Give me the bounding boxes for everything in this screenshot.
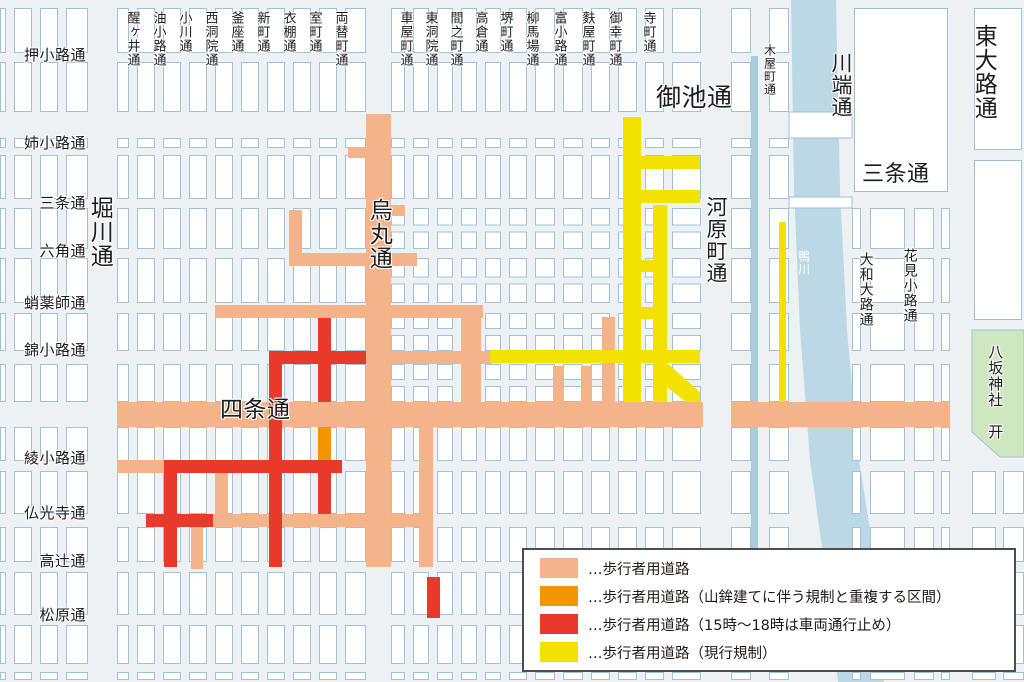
legend-item: …歩行者用道路（山鉾建てに伴う規制と重複する区間）: [540, 584, 1014, 608]
street-label-horizontal: 高辻通: [2, 553, 86, 570]
street-label-vertical: 間之町通: [447, 11, 462, 67]
legend-swatch-current: [540, 642, 578, 662]
street-label-horizontal: 仏光寺通: [2, 505, 86, 522]
street-label-horizontal: 錦小路通: [2, 342, 86, 359]
legend-item-label: …歩行者用道路: [588, 558, 690, 579]
legend-item: …歩行者用道路（現行規制）: [540, 640, 1014, 664]
kyoto-pedestrian-road-map: 醒ヶ井通油小路通小川通西洞院通釜座通新町通衣棚通室町通両替町通車屋町通東洞院通間…: [0, 0, 1024, 682]
street-label-vertical: 衣棚通: [280, 11, 295, 53]
street-label-horizontal: 松原通: [2, 607, 86, 624]
legend-item-label: …歩行者用道路（山鉾建てに伴う規制と重複する区間）: [588, 586, 951, 607]
street-label-vertical: 醒ヶ井通: [124, 11, 139, 67]
legend-item: …歩行者用道路（15時〜18時は車両通行止め）: [540, 612, 1014, 636]
street-label-horizontal: 蛸薬師通: [2, 295, 86, 312]
street-label-vertical: 東洞院通: [422, 11, 437, 67]
street-label-major: 河原町通: [704, 196, 728, 284]
street-label-vertical: 両替町通: [332, 11, 347, 67]
street-label-vertical: 車屋町通: [397, 11, 412, 67]
street-label-vertical: 新町通: [254, 11, 269, 53]
legend-swatch-pedestrian: [540, 558, 578, 578]
street-label-horizontal: 六角通: [2, 243, 86, 260]
roads-overlap-yamahoko: [318, 427, 331, 462]
street-label-major: 鴨川: [796, 250, 809, 276]
street-label-major: 三条通: [862, 163, 930, 188]
street-label-vertical: 釜座通: [228, 11, 243, 53]
legend: …歩行者用道路 …歩行者用道路（山鉾建てに伴う規制と重複する区間） …歩行者用道…: [522, 548, 1016, 672]
street-label-vertical: 寺町通: [640, 11, 655, 53]
street-label-major: 烏丸通: [365, 198, 391, 270]
street-label-vertical: 高倉通: [472, 11, 487, 53]
street-label-vertical: 油小路通: [150, 11, 165, 67]
street-label-vertical: 堺町通: [497, 11, 512, 53]
street-label-vertical: 柳馬場通: [523, 11, 538, 67]
street-label-major: 四条通: [220, 398, 291, 424]
street-label-major: 川端通: [829, 52, 853, 118]
street-label-vertical: 御幸町通: [606, 11, 621, 67]
street-label-major: 木屋町通: [762, 44, 775, 96]
street-label-major: 御池通: [656, 84, 733, 112]
street-label-major: 東大路通: [970, 24, 996, 120]
street-label-vertical: 富小路通: [551, 11, 566, 67]
street-label-vertical: 室町通: [306, 11, 321, 53]
legend-item-label: …歩行者用道路（15時〜18時は車両通行止め）: [588, 614, 900, 635]
street-label-horizontal: 綾小路通: [2, 450, 86, 467]
legend-item-label: …歩行者用道路（現行規制）: [588, 642, 777, 663]
street-label-horizontal: 三条通: [2, 195, 86, 212]
street-label-vertical: 小川通: [176, 11, 191, 53]
takase-canal: [751, 56, 758, 548]
legend-swatch-timed: [540, 614, 578, 634]
street-label-major: 花見小路通: [901, 248, 917, 323]
street-label-major: 八坂神社 开: [987, 344, 1004, 440]
legend-swatch-overlap: [540, 586, 578, 606]
street-label-horizontal: 姉小路通: [2, 135, 86, 152]
street-label-vertical: 麩屋町通: [579, 11, 594, 67]
street-label-vertical: 西洞院通: [202, 11, 217, 67]
street-label-major: 堀川通: [86, 196, 112, 268]
street-label-horizontal: 押小路通: [2, 47, 86, 64]
legend-item: …歩行者用道路: [540, 556, 1014, 580]
street-label-major: 大和大路通: [857, 252, 873, 327]
